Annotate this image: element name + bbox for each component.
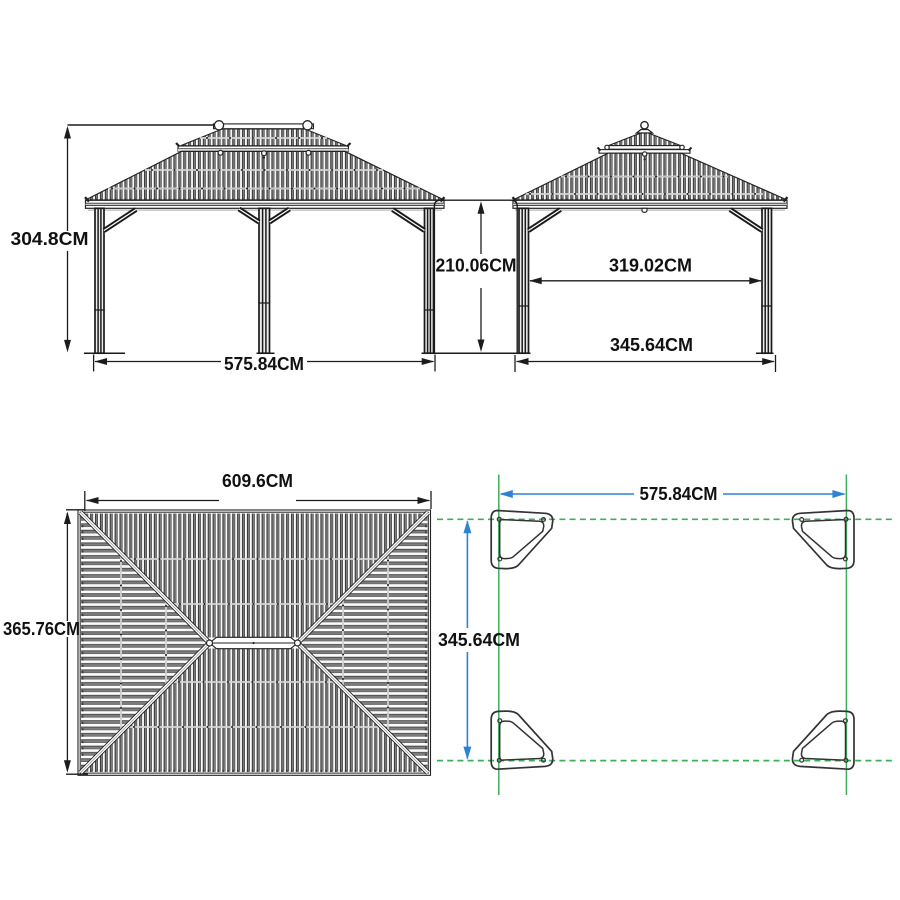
- svg-text:319.02CM: 319.02CM: [609, 255, 692, 275]
- svg-text:345.64CM: 345.64CM: [610, 335, 693, 355]
- svg-text:609.6CM: 609.6CM: [222, 471, 293, 491]
- svg-text:575.84CM: 575.84CM: [224, 354, 304, 374]
- svg-text:365.76CM: 365.76CM: [3, 619, 80, 639]
- svg-text:345.64CM: 345.64CM: [438, 630, 520, 650]
- svg-text:210.06CM: 210.06CM: [436, 255, 517, 275]
- svg-text:575.84CM: 575.84CM: [640, 484, 718, 504]
- svg-text:304.8CM: 304.8CM: [11, 229, 89, 249]
